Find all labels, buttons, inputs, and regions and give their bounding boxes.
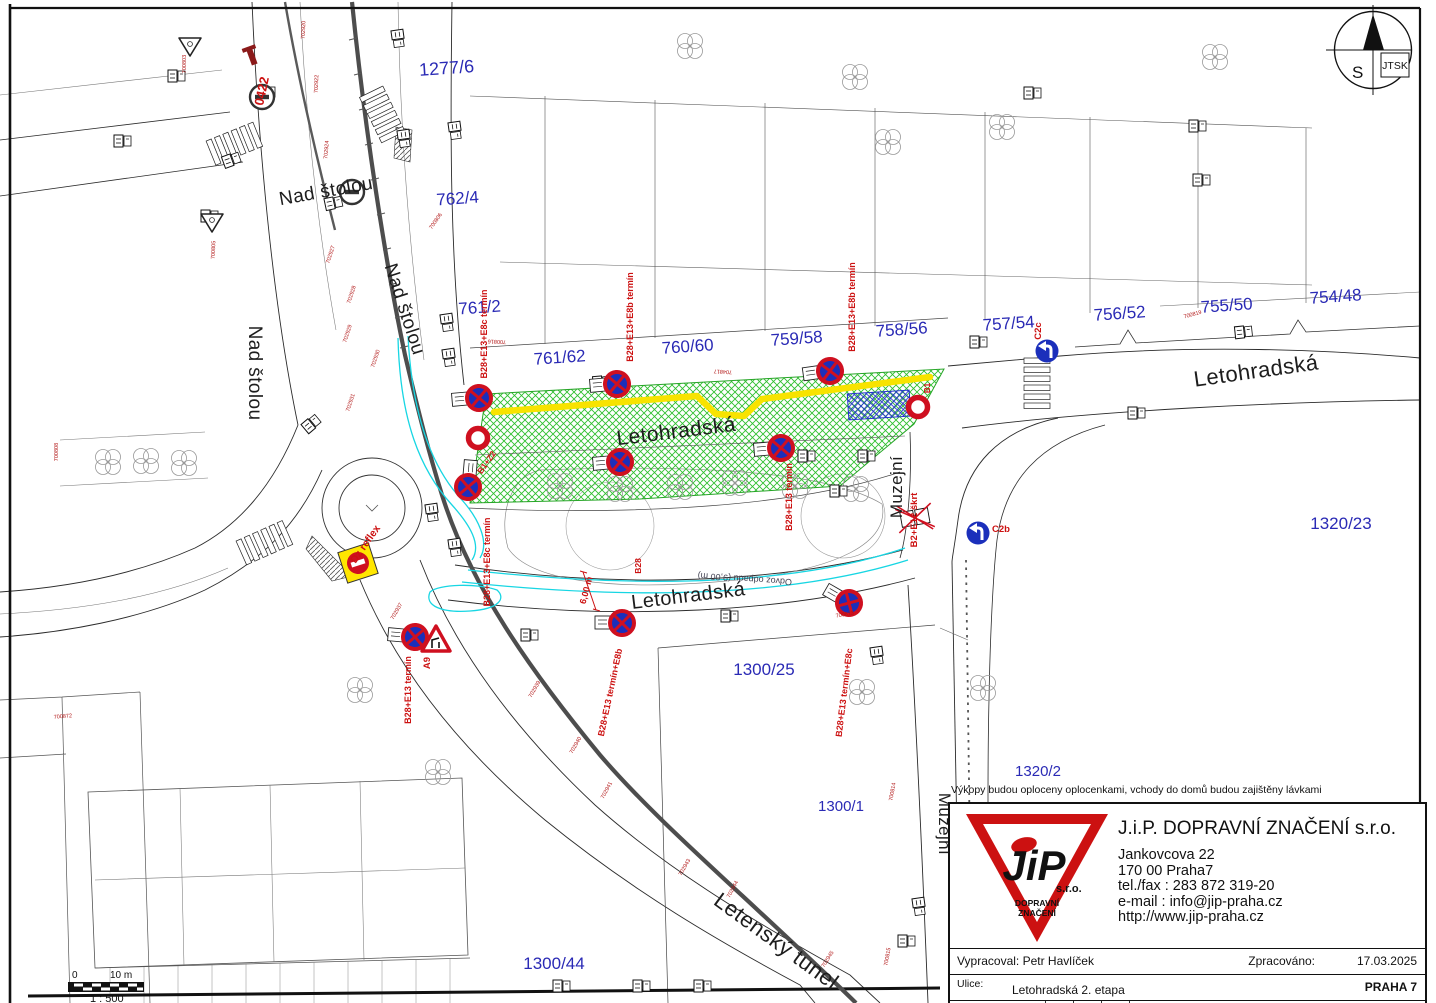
compass-s-label: S xyxy=(1352,63,1363,82)
crosswalk xyxy=(1024,358,1050,409)
sign-cluster xyxy=(633,980,650,992)
sign-cluster xyxy=(1189,120,1206,132)
tree-icon xyxy=(172,451,197,476)
logo-line2: ZNAČENÍ xyxy=(1018,907,1056,918)
sign-cluster xyxy=(912,897,926,916)
sign-cluster xyxy=(553,980,570,992)
survey-point-number: 702924 xyxy=(323,141,331,160)
tree-icon xyxy=(843,65,868,90)
parcel-number: 1300/1 xyxy=(818,798,864,815)
sign-annotation: A9 xyxy=(422,657,433,669)
tree-icon xyxy=(348,678,373,703)
survey-point-number: 702928 xyxy=(346,285,357,304)
sign-annotation: B2+E12 škrt xyxy=(909,492,920,547)
sign-annotation: B28+E13 termín xyxy=(784,463,794,531)
sign-annotation: B28+E13 termín xyxy=(403,656,413,724)
scale-ratio-label: 1 : 500 xyxy=(90,993,124,1003)
sign-cluster xyxy=(830,485,847,497)
street-name: Letenský tunel xyxy=(709,887,843,994)
sign-cluster xyxy=(858,450,875,462)
parcel-number: 760/60 xyxy=(661,335,714,358)
scale-bar: 0 10 m 1 : 500 xyxy=(68,970,144,1003)
traffic-signage-plan-page: 1277/6762/4761/2761/62760/60759/58758/56… xyxy=(0,0,1436,1003)
survey-point-number: 702939 xyxy=(528,680,542,699)
parcel-number: 1300/25 xyxy=(733,660,794,679)
sign-cluster xyxy=(448,538,462,557)
parcel-number: 761/62 xyxy=(533,346,586,369)
prepared-by-value: Petr Havlíček xyxy=(1023,954,1094,968)
tree-icon xyxy=(134,449,159,474)
city-value: PRAHA 7 xyxy=(1365,980,1417,994)
company-email: e-mail : info@jip-praha.cz xyxy=(1118,895,1418,911)
tunnel-line xyxy=(285,2,856,1003)
company-name: J.i.P. DOPRAVNÍ ZNAČENÍ s.r.o. xyxy=(1118,818,1418,840)
parcel-number: 755/50 xyxy=(1200,294,1253,317)
sign-annotation: B28+E13+E8b termín xyxy=(847,262,857,352)
mandatory-direction-sign-c2 xyxy=(1036,340,1059,363)
street-name: Letohradská xyxy=(1192,349,1320,391)
parcel-number: 1320/23 xyxy=(1310,514,1371,533)
survey-point-number: 700819 xyxy=(1183,310,1202,321)
north-arrow: S JTSK xyxy=(1326,5,1412,95)
sign-annotation: B28+E13 termín+E8b xyxy=(596,647,625,737)
title-block: JiP s.r.o. DOPRAVNÍ ZNAČENÍ J.i.P. DOPRA… xyxy=(948,802,1427,1003)
yield-sign xyxy=(179,38,201,56)
parcel-number: 754/48 xyxy=(1309,285,1362,308)
survey-point-number: 700813 xyxy=(835,610,854,619)
survey-point-number: 702941 xyxy=(600,781,614,800)
sign-cluster xyxy=(694,980,711,992)
tree-icon xyxy=(971,676,996,701)
parcel-number: 1320/2 xyxy=(1015,763,1061,780)
survey-point-number: 702943 xyxy=(678,858,692,877)
company-address-2: 170 00 Praha7 xyxy=(1118,864,1418,880)
parcel-number: 758/56 xyxy=(875,318,928,341)
tree-icon xyxy=(990,115,1015,140)
survey-point-number: 700803 xyxy=(182,55,188,73)
reserved-zone-blue xyxy=(847,390,910,420)
sign-annotation: B1 xyxy=(923,382,932,393)
parcel-number: 757/54 xyxy=(982,312,1035,335)
sign-cluster xyxy=(970,336,987,348)
logo-text: JiP xyxy=(1002,842,1066,889)
survey-point-number: 702937 xyxy=(390,602,404,621)
sign-cluster xyxy=(898,935,915,947)
survey-point-number: 700805 xyxy=(211,241,218,260)
mandatory-direction-sign-c2 xyxy=(967,522,990,545)
no-stopping-sign-b28 xyxy=(451,385,492,412)
survey-point-number: 700814 xyxy=(888,782,897,801)
sign-cluster xyxy=(798,450,815,462)
sign-annotation: C2c xyxy=(1033,322,1044,339)
crosswalk xyxy=(236,521,293,565)
survey-point-number: 702930 xyxy=(370,349,381,368)
survey-point-number: 700808 xyxy=(54,443,60,461)
titleblock-row-prepared: Vypracoval: Petr Havlíček Zpracováno: 17… xyxy=(950,948,1425,974)
parcel-number: 1300/44 xyxy=(523,954,584,973)
sign-annotation: B28+E13+E8b termín xyxy=(625,272,635,362)
parcel-number: 756/52 xyxy=(1093,302,1146,325)
survey-point-number: 702931 xyxy=(345,393,356,412)
processed-label: Zpracováno: xyxy=(1248,954,1315,968)
sign-cluster xyxy=(1193,174,1210,186)
parcel-number: 1277/6 xyxy=(418,56,474,80)
company-address-1: Jankovcova 22 xyxy=(1118,848,1418,864)
prohibition-ring-sign-b1 xyxy=(469,429,488,448)
street-value: Letohradská 2. etapa xyxy=(1012,983,1125,997)
survey-point-number: 702940 xyxy=(569,736,583,755)
sign-cluster xyxy=(425,503,439,522)
tree-icon xyxy=(426,760,451,785)
prepared-by-label: Vypracoval: xyxy=(957,954,1019,968)
sign-cluster xyxy=(1024,87,1041,99)
survey-point-number: 702927 xyxy=(325,245,336,264)
sign-cluster xyxy=(1128,407,1145,419)
processed-date: 17.03.2025 xyxy=(1357,954,1417,968)
no-stopping-sign-b28 xyxy=(595,611,634,635)
survey-point-number: 700815 xyxy=(883,947,892,966)
hydrant-marker xyxy=(242,44,262,67)
survey-point-number: 700816 xyxy=(488,338,507,345)
logo-sro: s.r.o. xyxy=(1056,883,1082,895)
survey-point-number: 702920 xyxy=(301,21,308,40)
sign-cluster xyxy=(721,610,738,622)
survey-point-number: 702929 xyxy=(342,324,353,343)
street-name: Nad štolou xyxy=(244,326,265,421)
plan-note: Výkopy budou oploceny oplocenkami, vchod… xyxy=(951,784,1426,796)
company-phone: tel./fax : 283 872 319-20 xyxy=(1118,879,1418,895)
street-name: Muzejní xyxy=(887,456,906,518)
sign-cluster xyxy=(448,121,462,140)
tree-icon xyxy=(96,450,121,475)
sign-cluster xyxy=(301,414,322,434)
scale-zero-label: 0 xyxy=(72,970,78,981)
company-web: http://www.jip-praha.cz xyxy=(1118,910,1418,926)
logo-line1: DOPRAVNÍ xyxy=(1015,898,1060,908)
parcel-number: 762/4 xyxy=(436,188,480,210)
sign-cluster xyxy=(440,313,454,332)
prohibition-ring-sign-b1 xyxy=(909,398,928,417)
sign-cluster xyxy=(442,348,456,367)
survey-point-number: 700806 xyxy=(428,212,443,230)
company-logo: JiP s.r.o. DOPRAVNÍ ZNAČENÍ xyxy=(962,810,1112,948)
sign-annotation: C2b xyxy=(992,524,1010,535)
sign-cluster xyxy=(521,629,538,641)
yield-sign xyxy=(201,214,223,232)
north-needle-icon xyxy=(1363,14,1384,50)
scale-ten-label: 10 m xyxy=(110,970,132,981)
tree-icon xyxy=(876,130,901,155)
sign-annotation: B28+E13+E8c termín xyxy=(482,517,492,606)
street-name: Nad štolou xyxy=(380,261,429,358)
parcel-number: 759/58 xyxy=(770,327,823,350)
sign-annotation: B28 xyxy=(633,558,643,574)
tree-icon xyxy=(850,680,875,705)
sign-annotation: B28+E13+E8c termín xyxy=(479,289,489,378)
sign-cluster xyxy=(870,646,884,665)
survey-point-number: 700872 xyxy=(54,713,73,721)
tree-icon xyxy=(678,34,703,59)
tree-icon xyxy=(1203,45,1228,70)
sign-cluster xyxy=(391,29,405,48)
survey-point-number: 702922 xyxy=(314,75,321,94)
compass-grid-label: JTSK xyxy=(1382,60,1408,72)
street-label: Ulice: xyxy=(957,978,983,990)
sign-cluster xyxy=(114,135,131,147)
survey-point-number: 704817 xyxy=(714,368,733,375)
titleblock-row-street: Ulice: Letohradská 2. etapa PRAHA 7 xyxy=(950,974,1425,1000)
